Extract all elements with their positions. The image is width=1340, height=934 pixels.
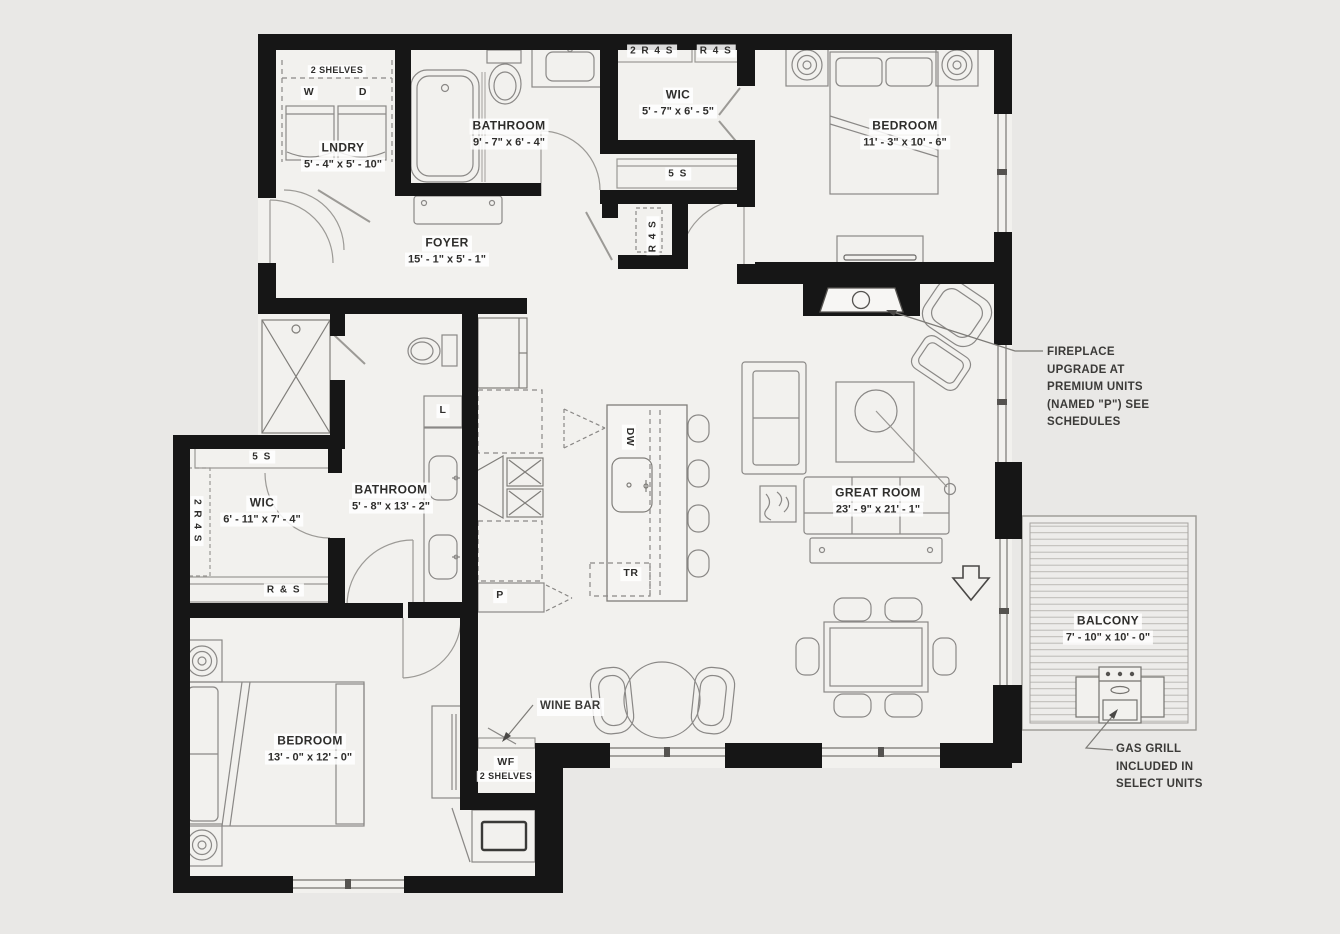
fireplace-firebox <box>820 288 903 312</box>
balcony-deck <box>1022 516 1196 730</box>
floorplan-drawing <box>0 0 1340 934</box>
floorplan-page: 2 SHELVES W D LNDRY 5' - 4" x 5' - 10" B… <box>0 0 1340 934</box>
